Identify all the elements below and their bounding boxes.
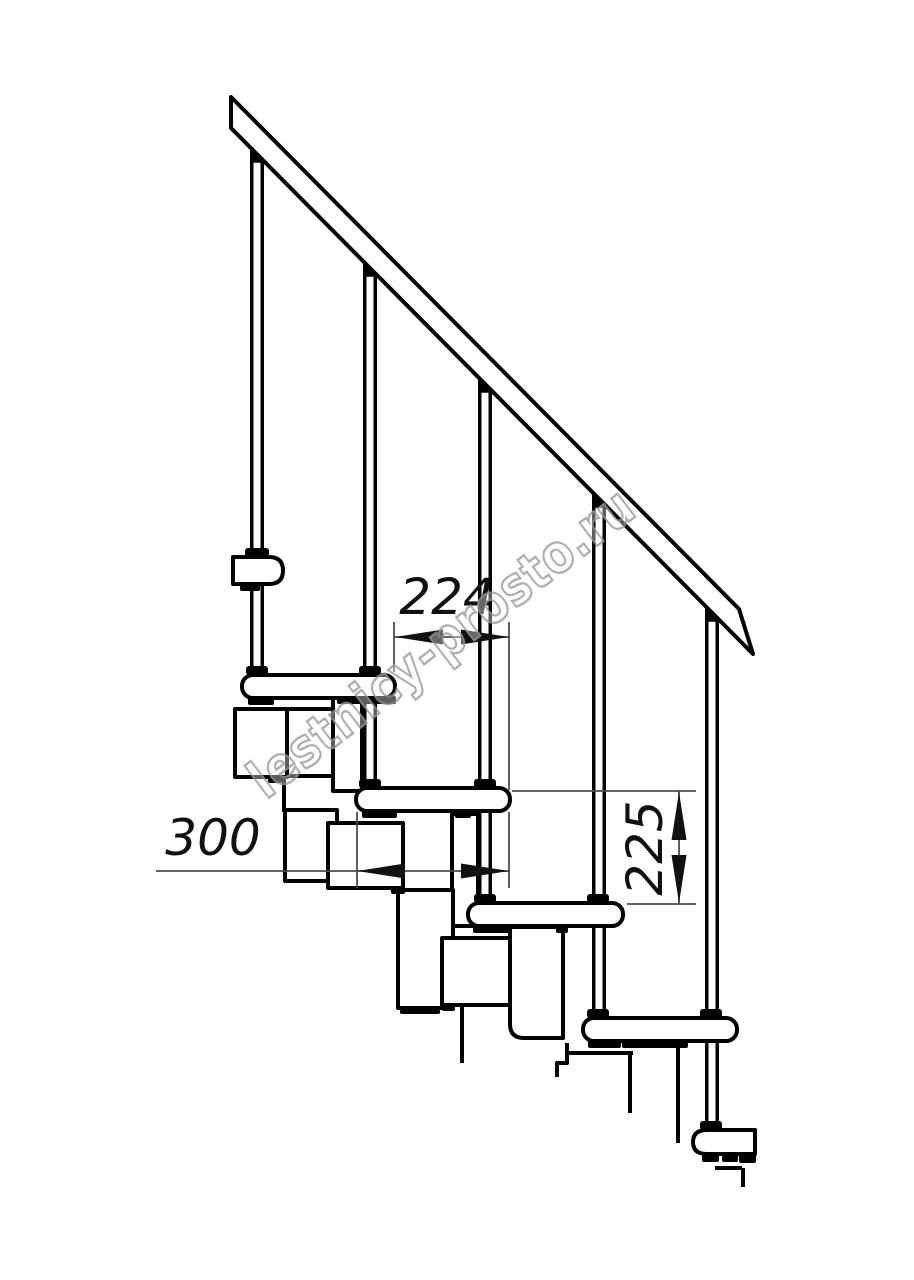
dimension-label-riser-height: 225 — [616, 800, 674, 895]
dimension-label-tread-depth: 300 — [165, 809, 260, 867]
baluster-4 — [592, 490, 607, 1020]
baluster-clamp — [587, 894, 609, 903]
baluster-foot — [359, 779, 381, 788]
module-cut-edge — [557, 1043, 567, 1077]
baluster-foot — [474, 894, 496, 903]
baluster-clamp — [474, 779, 496, 788]
upper-landing-edge — [233, 557, 283, 584]
tread-4 — [583, 1018, 737, 1041]
module-box-3c — [510, 927, 563, 1038]
tread-3 — [468, 903, 623, 926]
watermark-text: lestnicy-prosto.ru — [237, 476, 647, 811]
tread-2 — [356, 788, 510, 811]
baluster-5 — [705, 604, 720, 1132]
module-box-3b — [442, 938, 518, 1005]
baluster-foot — [246, 666, 268, 675]
baluster-foot — [700, 1121, 722, 1130]
staircase-side-elevation: 224 300 225 lestnicy-prosto.ru — [0, 0, 914, 1280]
baluster-1 — [250, 145, 265, 677]
staircase-drawing-page: 224 300 225 lestnicy-prosto.ru — [0, 0, 914, 1280]
module-box-2b — [328, 823, 403, 888]
baluster-foot — [587, 1009, 609, 1018]
lower-floor-bracket — [693, 1130, 755, 1154]
baluster-clamp — [700, 1009, 722, 1018]
baluster-clamp — [245, 548, 269, 557]
